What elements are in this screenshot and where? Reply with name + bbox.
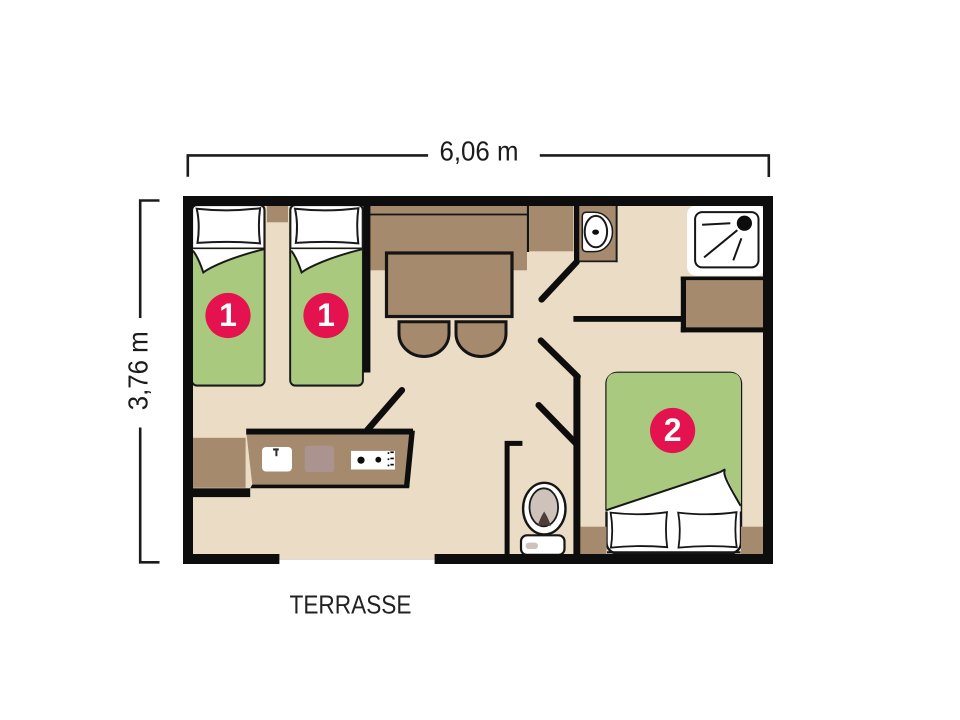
svg-text:1: 1 (317, 297, 335, 333)
svg-text:3,76 m: 3,76 m (123, 331, 154, 410)
svg-text:TERRASSE: TERRASSE (290, 590, 412, 620)
svg-text:6,06 m: 6,06 m (440, 136, 519, 167)
svg-text:1: 1 (219, 297, 237, 333)
svg-text:2: 2 (664, 412, 682, 448)
